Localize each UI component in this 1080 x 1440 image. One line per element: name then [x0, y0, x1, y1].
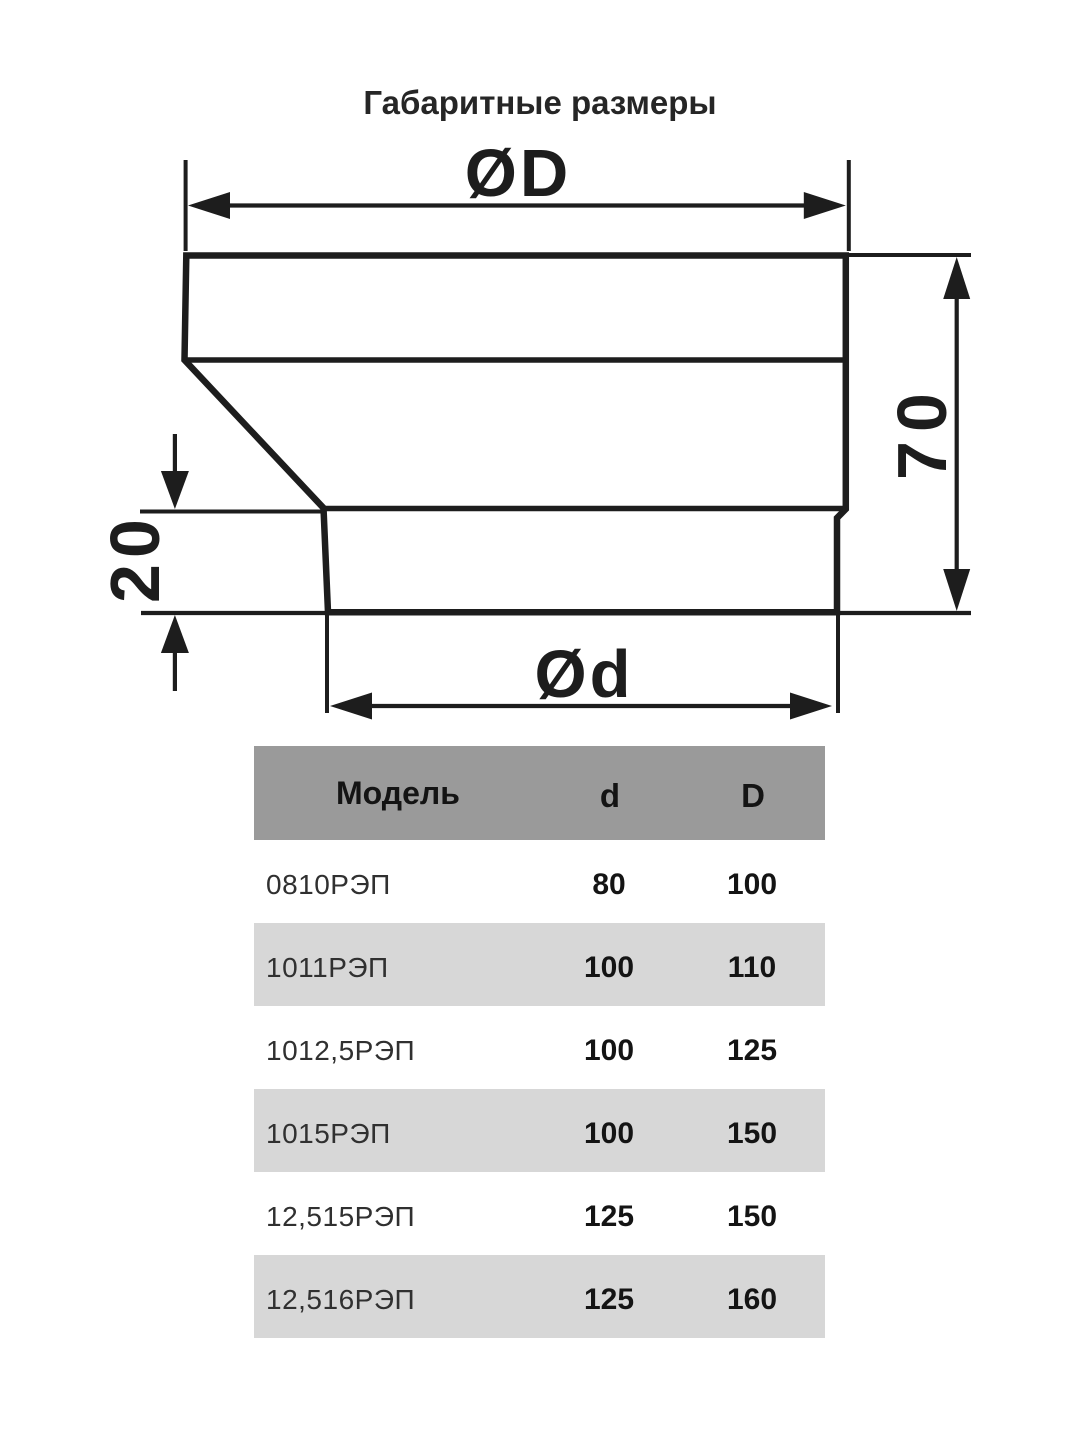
svg-text:70: 70 — [883, 384, 961, 480]
svg-text:ØD: ØD — [465, 136, 572, 211]
svg-text:Ød: Ød — [534, 637, 633, 712]
svg-text:20: 20 — [96, 513, 174, 603]
